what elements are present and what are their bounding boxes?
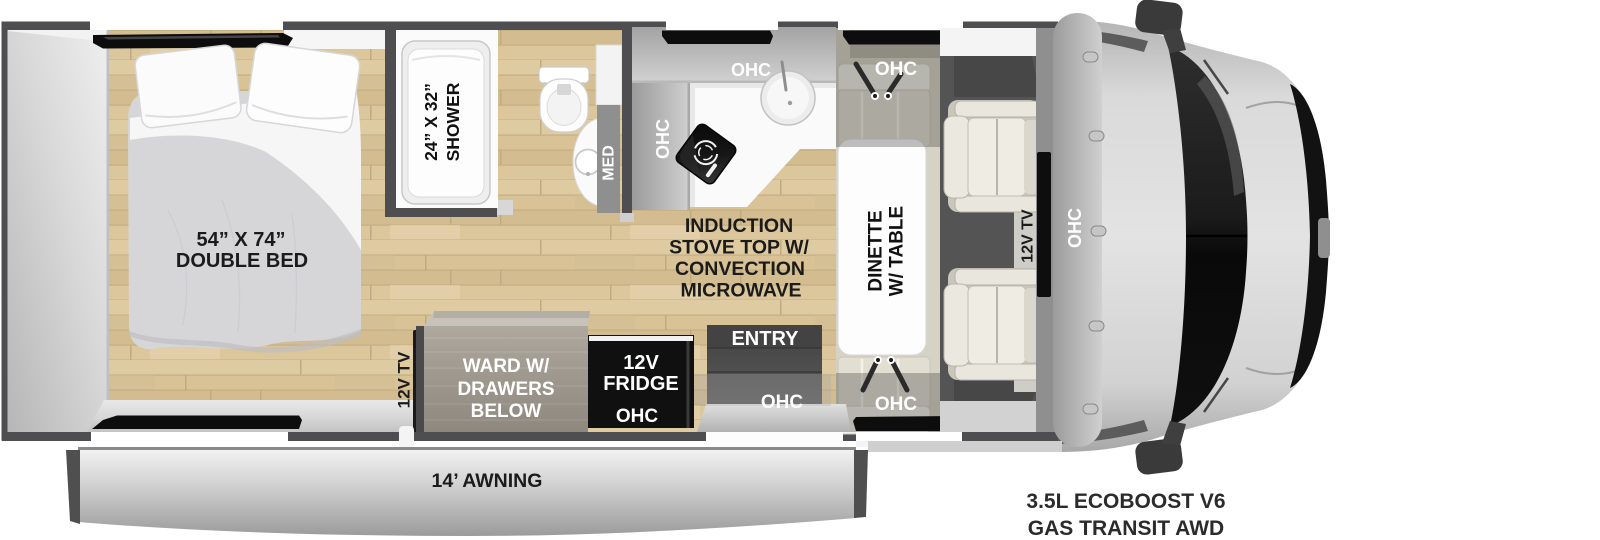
svg-text:WARD W/: WARD W/ bbox=[463, 356, 550, 377]
svg-text:OHC: OHC bbox=[875, 59, 918, 80]
svg-text:DRAWERS: DRAWERS bbox=[457, 379, 554, 400]
svg-text:SHOWER: SHOWER bbox=[443, 82, 463, 161]
svg-text:BELOW: BELOW bbox=[471, 401, 542, 422]
svg-text:24” X 32”: 24” X 32” bbox=[421, 83, 441, 161]
svg-text:OHC: OHC bbox=[761, 392, 804, 413]
svg-text:12V TV: 12V TV bbox=[395, 351, 414, 408]
svg-text:CONVECTION: CONVECTION bbox=[675, 258, 805, 280]
svg-text:3.5L ECOBOOST V6: 3.5L ECOBOOST V6 bbox=[1026, 490, 1225, 513]
svg-text:GAS TRANSIT AWD: GAS TRANSIT AWD bbox=[1028, 517, 1224, 540]
svg-text:W/ TABLE: W/ TABLE bbox=[887, 206, 908, 296]
svg-text:54” X 74”: 54” X 74” bbox=[197, 229, 286, 251]
svg-text:DOUBLE BED: DOUBLE BED bbox=[176, 250, 308, 272]
svg-text:MICROWAVE: MICROWAVE bbox=[681, 280, 802, 302]
svg-text:INDUCTION: INDUCTION bbox=[685, 215, 793, 237]
svg-text:OHC: OHC bbox=[1065, 208, 1085, 248]
svg-text:STOVE TOP W/: STOVE TOP W/ bbox=[669, 237, 809, 259]
svg-text:ENTRY: ENTRY bbox=[731, 328, 799, 350]
svg-text:OHC: OHC bbox=[653, 119, 673, 159]
svg-text:OHC: OHC bbox=[731, 60, 771, 80]
svg-text:OHC: OHC bbox=[875, 394, 918, 415]
svg-text:14’ AWNING: 14’ AWNING bbox=[432, 470, 543, 492]
svg-text:OHC: OHC bbox=[616, 406, 659, 427]
svg-text:MED: MED bbox=[601, 145, 618, 181]
svg-text:12V: 12V bbox=[623, 352, 659, 374]
svg-text:12V TV: 12V TV bbox=[1020, 209, 1037, 263]
svg-text:DINETTE: DINETTE bbox=[866, 210, 887, 291]
svg-text:FRIDGE: FRIDGE bbox=[603, 373, 679, 395]
